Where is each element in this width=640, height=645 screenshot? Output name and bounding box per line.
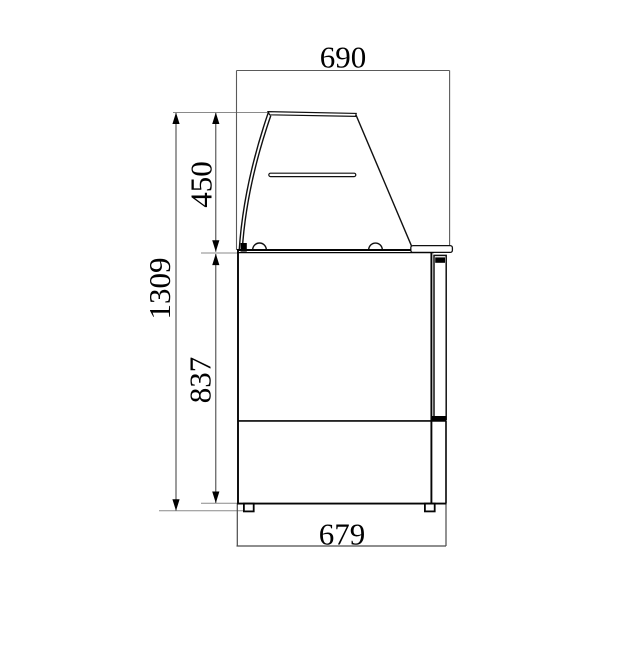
svg-text:679: 679: [319, 517, 366, 552]
svg-text:690: 690: [320, 40, 367, 75]
svg-text:450: 450: [184, 161, 219, 208]
svg-text:837: 837: [183, 357, 218, 404]
svg-text:1309: 1309: [142, 258, 177, 320]
